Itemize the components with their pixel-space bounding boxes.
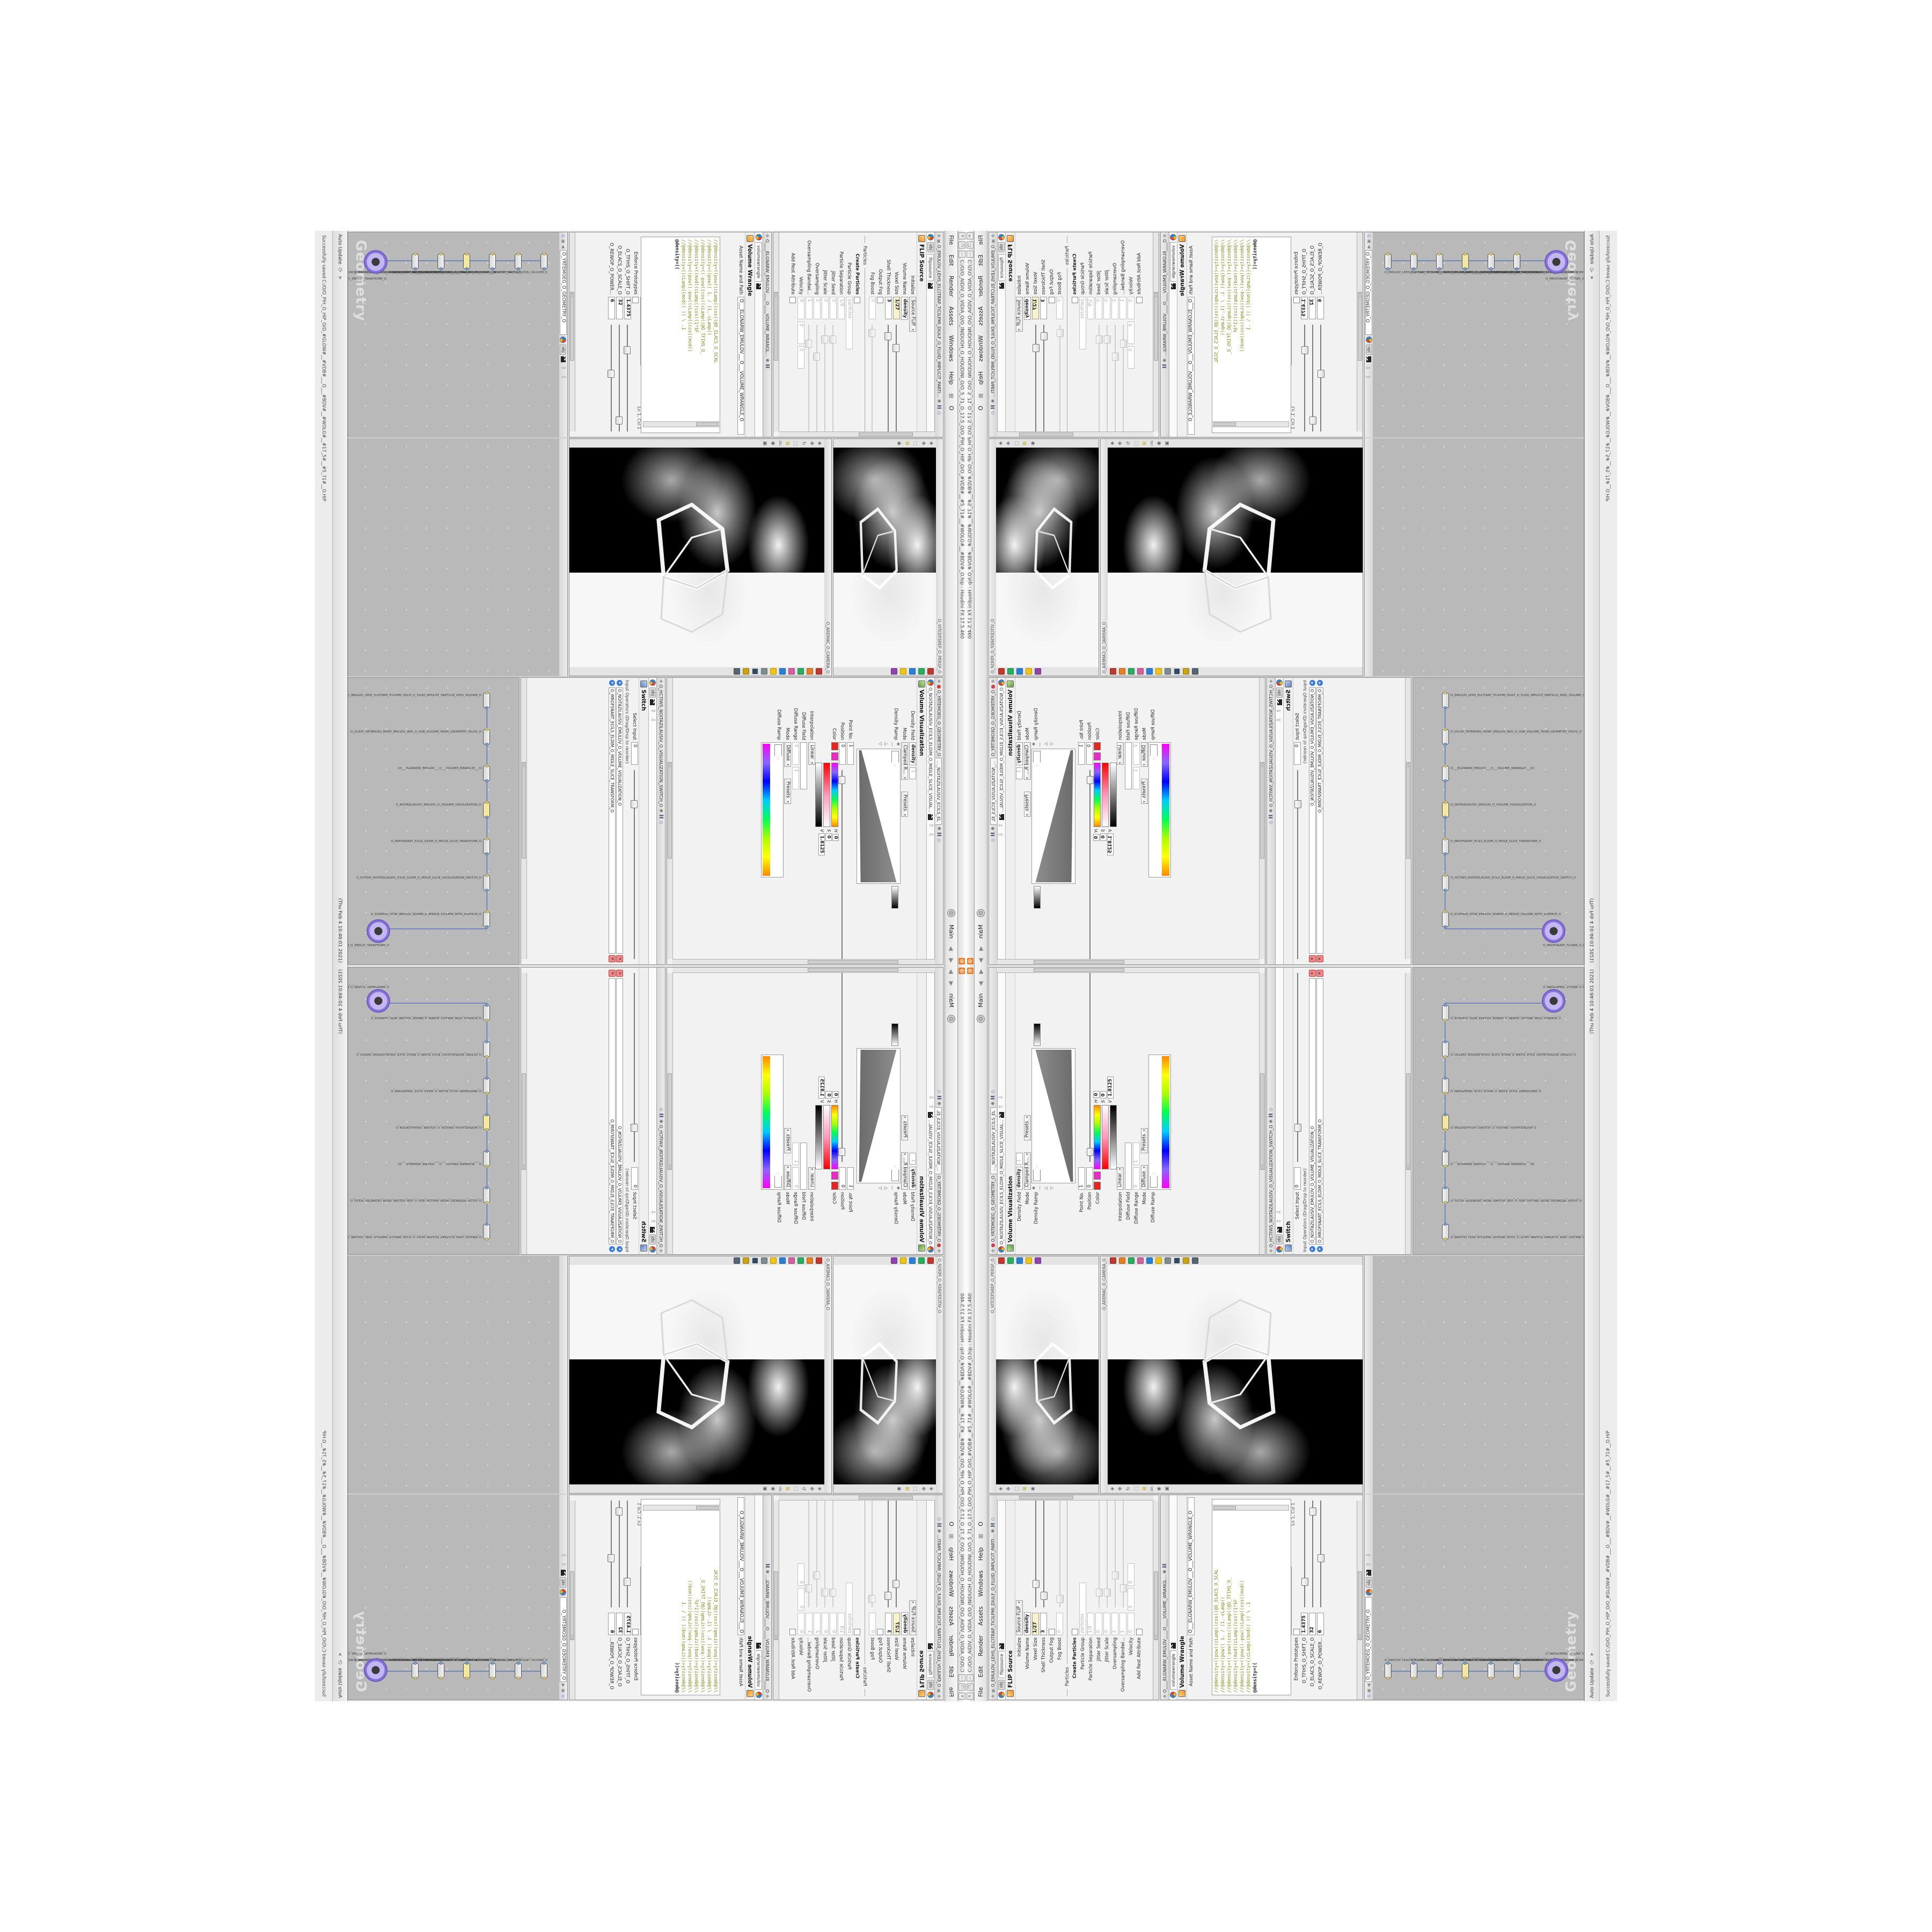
- menubar-scroll-right[interactable]: ▶: [948, 958, 955, 963]
- layout-icon[interactable]: ⊞: [948, 1534, 955, 1539]
- wireframe-icon[interactable]: [918, 668, 925, 675]
- density-field[interactable]: density: [909, 1167, 916, 1190]
- network-node[interactable]: [1385, 1663, 1392, 1678]
- saturation-gradient-bar[interactable]: [823, 763, 830, 827]
- viewport-camera-label[interactable]: O_VITCEPSREP_O_PERSP_O: [990, 619, 995, 674]
- point-no-field[interactable]: 1: [1078, 1167, 1085, 1190]
- network-a-canvas[interactable]: Geometry O_EMULOV_LEHS_ELCITRAP_TICILPMI…: [348, 1255, 559, 1700]
- mode-dropdown[interactable]: Clamped R...: [901, 742, 908, 780]
- diffuse-mode-dropdown[interactable]: Diffuse: [1141, 1165, 1148, 1190]
- network-node[interactable]: [483, 693, 490, 708]
- viz-tab[interactable]: ..._NOITAZILAUSIV_ECILS_EL: [936, 1107, 942, 1174]
- pane-divider[interactable]: [348, 1255, 943, 1256]
- houdini-help-icon[interactable]: H: [991, 832, 996, 837]
- update-mode-selector[interactable]: Auto Update: [1590, 234, 1595, 264]
- color-swatch-magenta[interactable]: [1094, 752, 1101, 760]
- oversampling-field[interactable]: 2: [1111, 1613, 1118, 1635]
- value-gradient-bar[interactable]: [815, 763, 822, 827]
- switch-breadcrumb[interactable]: O_HCTIWS_NOITAZILAUSIV_O_VISUALIZATION_S…: [1269, 685, 1274, 807]
- houdini-help-icon[interactable]: H: [936, 1095, 942, 1100]
- jitter-scale-slider[interactable]: [1107, 325, 1108, 431]
- velocity-y-field[interactable]: 0: [797, 1588, 804, 1611]
- color-swatch-red[interactable]: [831, 742, 838, 750]
- network-node[interactable]: [483, 839, 490, 854]
- network-node[interactable]: [1442, 729, 1449, 744]
- add-rest-checkbox[interactable]: [1136, 297, 1143, 303]
- notebook-icon[interactable]: [743, 1257, 749, 1264]
- network-editor-b[interactable]: O_EMULOV_LEHS_ELCITRAP_TICILPMI_DIULF_O_…: [348, 677, 519, 965]
- reorder-icon[interactable]: ➤: [1309, 680, 1315, 686]
- snap-grid-icon[interactable]: ⊞: [904, 441, 910, 445]
- pin-icon[interactable]: ▣: [561, 239, 566, 244]
- s-field[interactable]: 0: [1100, 833, 1107, 841]
- switch-horizontal-scrollbar[interactable]: ⁞⁞⁞: [521, 973, 527, 1254]
- clapper-icon[interactable]: [650, 699, 655, 705]
- pane-split-icon[interactable]: ✥: [936, 234, 941, 238]
- net-back-icon[interactable]: ◀: [1366, 245, 1371, 248]
- shell-thickness-slider[interactable]: [1043, 325, 1044, 431]
- enforce-prototypes-checkbox[interactable]: [1293, 1629, 1300, 1635]
- viewport-camera-label[interactable]: O_AREMAC_O_CAMERA_O: [1102, 1258, 1107, 1310]
- density-ramp-widget[interactable]: [857, 749, 901, 884]
- oversampling-slider[interactable]: [1115, 325, 1116, 431]
- gear-icon[interactable]: ✱: [765, 1570, 770, 1574]
- enforce-prototypes-checkbox[interactable]: [633, 1629, 639, 1635]
- value-gradient-bar[interactable]: [1110, 763, 1117, 827]
- asset-name-field[interactable]: O___ELGNARW_EMULOV___O___VOLUME_WRANGLE_…: [1188, 297, 1195, 435]
- clapper-icon[interactable]: [999, 814, 1004, 820]
- jitter-seed-slider[interactable]: [833, 1501, 834, 1607]
- particles-section-label[interactable]: Particles: [1064, 1495, 1071, 1700]
- initialize-dropdown[interactable]: Source FLIP: [909, 1600, 916, 1635]
- view-icon[interactable]: ◉: [1030, 1487, 1036, 1491]
- gear-icon[interactable]: ✱: [658, 809, 664, 813]
- output-fog-checkbox[interactable]: [877, 1629, 884, 1635]
- pie-chart-icon[interactable]: [927, 679, 934, 686]
- pie-chart-icon[interactable]: [1276, 679, 1283, 686]
- shift-param-slider[interactable]: [1304, 325, 1305, 431]
- layout-icon[interactable]: ⊞: [977, 393, 984, 398]
- menu-help[interactable]: Help: [947, 1546, 955, 1562]
- normals-icon[interactable]: [909, 1257, 916, 1264]
- gear-icon[interactable]: ✱: [936, 826, 942, 831]
- houdini-help-icon[interactable]: H: [765, 364, 770, 369]
- menu-help[interactable]: Help: [947, 370, 955, 386]
- flip-breadcrumb[interactable]: O_EMULOV_LEHS_ELCITRAP_TICILPMI_DIULF_O_…: [936, 1534, 941, 1687]
- menu-assets[interactable]: Assets: [947, 1605, 955, 1627]
- network-node[interactable]: [1442, 1188, 1449, 1203]
- menu-edit[interactable]: Edit: [977, 1665, 985, 1678]
- density-scale-field[interactable]: 1: [1016, 1153, 1023, 1165]
- network-node[interactable]: [1442, 1078, 1449, 1093]
- desktop-selector[interactable]: Main: [948, 993, 955, 1007]
- network-node[interactable]: [437, 254, 444, 269]
- network-node[interactable]: [1442, 693, 1449, 708]
- network-node[interactable]: [412, 254, 419, 269]
- power-param-slider[interactable]: [611, 325, 612, 431]
- network-node[interactable]: [1442, 1224, 1449, 1239]
- volume-name-field[interactable]: density: [1024, 1612, 1031, 1635]
- houdini-help-icon[interactable]: H: [1269, 1113, 1274, 1118]
- viz-tab[interactable]: ..._NOITAZILAUSIV_ECILS_EL: [936, 758, 942, 825]
- sync-arrows-icon[interactable]: ⟳: [1589, 267, 1596, 272]
- pane-divider[interactable]: [348, 1494, 943, 1495]
- display-node-purple[interactable]: [1545, 1658, 1568, 1682]
- delete-icon[interactable]: ✕: [1309, 955, 1316, 962]
- hue-gradient-bar[interactable]: [831, 763, 838, 827]
- move-icon[interactable]: ✥: [1118, 441, 1123, 445]
- shell-thickness-field[interactable]: 3: [1040, 1613, 1047, 1635]
- diffuse-ramp-widget[interactable]: [1148, 742, 1171, 877]
- saturation-gradient-bar[interactable]: [1102, 763, 1109, 827]
- code-scrollbar[interactable]: [643, 1505, 720, 1511]
- minimize-button[interactable]: —: [958, 251, 965, 258]
- viewport-camera-label[interactable]: O_VITCEPSREP_O_PERSP_O: [937, 1258, 942, 1313]
- handles-icon[interactable]: ⬚: [912, 1487, 918, 1491]
- network-node[interactable]: [483, 1188, 490, 1203]
- abc-icon[interactable]: abc: [778, 441, 782, 447]
- reorder-icon[interactable]: ➤: [1317, 1246, 1323, 1252]
- menu-windows[interactable]: Windows: [977, 1569, 985, 1598]
- density-scale-field[interactable]: 1: [1016, 767, 1023, 779]
- film-reel-icon[interactable]: [734, 668, 740, 675]
- obj-badge[interactable]: obj: [927, 242, 934, 252]
- velocity-z-field[interactable]: 0: [797, 346, 804, 369]
- nav-down-icon[interactable]: ⇩: [649, 716, 656, 723]
- fog-boost-slider[interactable]: [1059, 1501, 1060, 1607]
- nav-up-icon[interactable]: ⇧: [649, 1218, 656, 1225]
- ramp-add-remove[interactable]: ✚—△▽: [878, 742, 901, 747]
- handles-icon[interactable]: ⬚: [1014, 441, 1020, 446]
- output-fog-checkbox[interactable]: [1049, 1629, 1055, 1635]
- output-fog-checkbox[interactable]: [1049, 297, 1055, 303]
- menu-help[interactable]: Help: [977, 1546, 985, 1562]
- saturation-gradient-bar[interactable]: [1102, 1105, 1109, 1169]
- search-icon[interactable]: ⊙: [658, 821, 664, 825]
- camera-lock-icon[interactable]: [1035, 668, 1041, 675]
- menubar-scroll-left[interactable]: ◀: [977, 981, 984, 985]
- mode-dropdown[interactable]: Clamped R...: [901, 1152, 908, 1190]
- restore-button[interactable]: ❐: [967, 241, 974, 248]
- network-node[interactable]: [1410, 254, 1417, 269]
- axis-icon[interactable]: [1110, 668, 1116, 675]
- select-icon[interactable]: ◈: [998, 1487, 1004, 1491]
- handles-icon[interactable]: ⬚: [912, 441, 918, 446]
- pyramid-icon[interactable]: [1155, 1257, 1162, 1264]
- flip-vertical-scrollbar[interactable]: [997, 1495, 1153, 1501]
- gear-icon[interactable]: ✱: [1269, 809, 1274, 813]
- menu-edit[interactable]: Edit: [947, 253, 955, 267]
- viewport-camera-label[interactable]: O_VITCEPSREP_O_PERSP_O: [937, 619, 942, 674]
- oversampling-bw-field[interactable]: 1: [1119, 297, 1126, 319]
- snap-grid-icon[interactable]: ⊞: [1022, 441, 1028, 445]
- lights-icon[interactable]: [900, 668, 906, 675]
- viewport-small-render[interactable]: [996, 448, 1099, 667]
- power-param-field[interactable]: 6: [1317, 297, 1324, 319]
- velocity-x-field[interactable]: 0: [797, 1613, 804, 1635]
- film-reel-icon[interactable]: [1192, 668, 1198, 675]
- delete-icon[interactable]: ✕: [609, 955, 616, 962]
- snap-grid-icon[interactable]: ⊞: [785, 441, 790, 445]
- wrangle-breadcrumb[interactable]: O____ELGNARW_EMULOV____O____VOLUME_WRANG…: [765, 239, 770, 357]
- snap-grid-icon[interactable]: ⊞: [1142, 441, 1147, 445]
- display-node-purple[interactable]: [364, 250, 387, 274]
- velocity-y-field[interactable]: 0: [1128, 1588, 1135, 1611]
- pane-divider[interactable]: [348, 437, 943, 438]
- diffuse-mode-dropdown[interactable]: Diffuse: [784, 742, 791, 767]
- gear-icon[interactable]: ✱: [936, 399, 942, 404]
- volume-name-field[interactable]: density: [901, 297, 908, 320]
- menu-o-item[interactable]: O: [977, 406, 984, 411]
- flip-node-tab[interactable]: flipsource: [927, 1651, 934, 1678]
- network-a-path[interactable]: O_YRTEMOEG_O_GEOMETRY_O: [560, 1597, 567, 1682]
- pane-divider[interactable]: [989, 437, 1584, 438]
- orbit-icon[interactable]: [1119, 1257, 1125, 1264]
- network-a-path[interactable]: O_YRTEMOEG_O_GEOMETRY_O: [1365, 250, 1372, 335]
- hue-gradient-bar[interactable]: [1094, 1105, 1101, 1169]
- point-no-field[interactable]: 1: [847, 1167, 854, 1190]
- nav-up-icon[interactable]: ⇧: [998, 1103, 1005, 1110]
- pane-pin-icon[interactable]: ▣: [936, 239, 941, 244]
- viz-breadcrumb[interactable]: O_NOITAZILAUSIV_ECILS_ELDIM_O_MIDLE_SLIC…: [999, 1119, 1004, 1245]
- v-field[interactable]: 1.8125: [818, 1077, 825, 1099]
- power-param-field[interactable]: 6: [608, 1613, 615, 1635]
- shell-thickness-field[interactable]: 3: [885, 1613, 892, 1635]
- view-icon[interactable]: ◉: [770, 1487, 775, 1491]
- obj-tab-badge[interactable]: obj: [560, 1577, 567, 1587]
- network-node-selected[interactable]: [463, 1663, 470, 1678]
- shell-thickness-slider[interactable]: [888, 325, 889, 431]
- pane-split-icon[interactable]: ✥: [658, 1249, 663, 1253]
- viz-tab[interactable]: ..._NOITAZILAUSIV_ECILS_EL: [990, 758, 997, 825]
- flower-icon[interactable]: [788, 668, 795, 675]
- pie-chart-icon[interactable]: [1276, 1246, 1283, 1253]
- viz-vertical-scrollbar[interactable]: [672, 968, 935, 973]
- power-param-slider[interactable]: [1320, 1501, 1321, 1607]
- nav-down-icon[interactable]: ⇩: [927, 1094, 934, 1101]
- viz-breadcrumb[interactable]: O_NOITAZILAUSIV_ECILS_ELDIM_O_MIDLE_SLIC…: [928, 687, 933, 813]
- delete-icon[interactable]: ✕: [1316, 970, 1323, 977]
- restore-button[interactable]: ❐: [958, 1684, 965, 1690]
- particle-group-field[interactable]: particles: [1079, 297, 1086, 349]
- velocity-y-field[interactable]: 0: [1128, 321, 1135, 344]
- handles-icon[interactable]: ⬚: [793, 1487, 798, 1491]
- fog-boost-field[interactable]: 0: [869, 1613, 876, 1635]
- create-particles-checkbox[interactable]: [854, 1629, 861, 1635]
- clapper-icon[interactable]: [561, 356, 566, 362]
- pane-divider[interactable]: [989, 1255, 1584, 1256]
- point-no-field[interactable]: 1: [1078, 742, 1085, 765]
- houdini-help-icon[interactable]: H: [936, 832, 942, 837]
- shade-icon[interactable]: [998, 1257, 1005, 1264]
- hue-gradient-bar[interactable]: [1094, 763, 1101, 827]
- flip-horizontal-scrollbar[interactable]: ⁞⁞⁞: [1153, 1501, 1159, 1700]
- network-node-selected[interactable]: [483, 802, 490, 817]
- select-input-slider[interactable]: [1297, 770, 1298, 959]
- jitter-scale-field[interactable]: 0: [822, 1613, 829, 1635]
- oversampling-bw-slider[interactable]: [1123, 1501, 1124, 1607]
- particle-group-field[interactable]: particles: [1079, 1583, 1086, 1635]
- clapper-icon[interactable]: [928, 1112, 933, 1118]
- network-node[interactable]: [540, 254, 547, 269]
- obj-badge[interactable]: obj: [998, 1680, 1005, 1690]
- viz-breadcrumb[interactable]: O_NOITAZILAUSIV_ECILS_ELDIM_O_MIDLE_SLIC…: [999, 687, 1004, 813]
- pane-pin-icon[interactable]: ▣: [991, 239, 996, 244]
- film-reel-icon[interactable]: [734, 1257, 740, 1264]
- enforce-prototypes-checkbox[interactable]: [1293, 297, 1300, 303]
- camera-lock-icon[interactable]: [891, 668, 897, 675]
- flower-icon[interactable]: [1137, 668, 1144, 675]
- handles-icon[interactable]: ⬚: [1134, 1487, 1139, 1491]
- code-scrollbar[interactable]: [1212, 1505, 1289, 1511]
- clapper-icon[interactable]: [928, 814, 933, 820]
- nav-up-icon[interactable]: ⇧: [1276, 1218, 1283, 1225]
- clapper-icon[interactable]: [1277, 1227, 1282, 1233]
- diffuse-field[interactable]: [800, 1143, 807, 1190]
- network-node[interactable]: [1442, 1151, 1449, 1166]
- color-swatch-magenta[interactable]: [1094, 1172, 1101, 1180]
- flip-horizontal-scrollbar[interactable]: ⁞⁞⁞: [1153, 232, 1159, 431]
- add-rest-checkbox[interactable]: [790, 297, 796, 303]
- diffuse-mode-dropdown[interactable]: Diffuse: [1141, 742, 1148, 767]
- pyramid-icon[interactable]: [1155, 668, 1162, 675]
- gear-icon[interactable]: ✱: [991, 1529, 996, 1533]
- flip-node-tab[interactable]: flipsource: [998, 1651, 1005, 1678]
- desktop-selector[interactable]: Main: [977, 925, 984, 939]
- pin-icon[interactable]: ▣: [1366, 1688, 1371, 1693]
- scale-param-field[interactable]: 32: [1309, 1613, 1316, 1635]
- menu-windows[interactable]: Windows: [947, 1569, 955, 1598]
- particle-separation-field[interactable]: 1/9: [1087, 297, 1094, 319]
- layout-icon[interactable]: ⊞: [977, 1534, 984, 1539]
- pie-chart-icon[interactable]: [1366, 336, 1372, 343]
- update-mode-selector[interactable]: Auto Update: [338, 1668, 343, 1698]
- nav-up-icon[interactable]: ⇧: [927, 1103, 934, 1110]
- diffuse-field[interactable]: [800, 742, 807, 789]
- shift-param-slider[interactable]: [1304, 1501, 1305, 1607]
- ramp-add-remove[interactable]: ✚—△▽: [878, 1185, 901, 1190]
- network-node[interactable]: [483, 912, 490, 927]
- value-gradient-bar[interactable]: [1034, 1023, 1041, 1046]
- film-reel-icon[interactable]: [1192, 1257, 1198, 1264]
- reorder-icon[interactable]: ➤: [617, 1246, 623, 1252]
- density-scale-field[interactable]: 1: [909, 767, 916, 779]
- flower-icon[interactable]: [788, 1257, 795, 1264]
- scale-param-slider[interactable]: [1312, 325, 1313, 431]
- input-operator-2[interactable]: O_MROFSNART_ECILS_ELDIM_O_MIDLE_SLICE_TR…: [609, 687, 616, 954]
- clapper-icon[interactable]: [757, 1643, 762, 1649]
- rotate-icon[interactable]: ↻: [801, 441, 806, 445]
- gear-icon[interactable]: ✱: [936, 1101, 942, 1106]
- camera-icon[interactable]: ▣: [1165, 441, 1170, 446]
- gear-icon[interactable]: ✱: [1162, 1570, 1168, 1574]
- pane-divider[interactable]: [348, 676, 943, 677]
- camera-lock-icon[interactable]: [1035, 1257, 1041, 1264]
- grid-display-icon[interactable]: [761, 668, 767, 675]
- notebook-icon[interactable]: [743, 668, 749, 675]
- reorder-icon[interactable]: ➤: [610, 680, 616, 686]
- houdini-help-icon[interactable]: H: [991, 405, 996, 409]
- code-scrollbar[interactable]: [1212, 421, 1289, 427]
- move-icon[interactable]: ✥: [1006, 1487, 1012, 1491]
- search-icon[interactable]: ⊙: [1269, 1108, 1274, 1112]
- menu-render[interactable]: Render: [977, 1634, 985, 1657]
- nav-up-icon[interactable]: ⇧: [560, 364, 567, 371]
- presets-dropdown[interactable]: Presets: [901, 1115, 908, 1140]
- presets-dropdown[interactable]: Presets: [1024, 1115, 1031, 1140]
- normals-icon[interactable]: [1016, 1257, 1023, 1264]
- obj-badge[interactable]: obj: [1276, 687, 1283, 698]
- nav-up-icon[interactable]: ⇧: [1366, 364, 1372, 371]
- flip-node-tab[interactable]: flipsource: [927, 254, 934, 281]
- pie-chart-icon[interactable]: [756, 1692, 762, 1698]
- wrangle-horizontal-scrollbar[interactable]: ⁞⁞⁞: [569, 1501, 575, 1700]
- obj-tab-badge[interactable]: obj: [1366, 345, 1372, 355]
- presets-dropdown[interactable]: Presets: [1024, 792, 1031, 817]
- pie-chart-icon[interactable]: [998, 679, 1005, 686]
- diffuse-mode-dropdown[interactable]: Diffuse: [784, 1165, 791, 1190]
- oversampling-slider[interactable]: [1115, 1501, 1116, 1607]
- interpolation-dropdown[interactable]: Linear: [808, 1167, 815, 1190]
- search-icon[interactable]: ⊙: [991, 411, 996, 415]
- search-icon[interactable]: ⊙: [1269, 821, 1274, 825]
- network-node[interactable]: [483, 1005, 490, 1020]
- menu-o-item[interactable]: O: [948, 406, 955, 411]
- minimize-button[interactable]: —: [967, 251, 974, 258]
- select-input-field[interactable]: 0: [631, 1167, 638, 1190]
- nav-down-icon[interactable]: ⇩: [1366, 1552, 1372, 1559]
- viz-path2[interactable]: O_YRTEMOEG_O_GEOMETRY_O: [991, 690, 996, 756]
- desktop-selector[interactable]: Main: [948, 925, 955, 939]
- fog-boost-field[interactable]: 0: [1056, 1613, 1063, 1635]
- fog-boost-slider[interactable]: [872, 325, 873, 431]
- viz-horizontal-scrollbar[interactable]: ⁞⁞⁞: [667, 678, 673, 959]
- pie-chart-icon[interactable]: [560, 336, 567, 343]
- minimize-button[interactable]: —: [967, 1674, 974, 1681]
- wrangle-horizontal-scrollbar[interactable]: ⁞⁞⁞: [1357, 232, 1363, 431]
- network-node[interactable]: [515, 1663, 522, 1678]
- reorder-icon[interactable]: ➤: [1317, 680, 1323, 686]
- update-mode-selector[interactable]: Auto Update: [338, 234, 343, 264]
- select-input-field[interactable]: 0: [1294, 742, 1301, 765]
- presets-dropdown[interactable]: Presets: [1141, 779, 1148, 804]
- network-node-selected[interactable]: [1442, 1115, 1449, 1130]
- value-gradient-bar[interactable]: [1110, 1105, 1117, 1169]
- nav-up-icon[interactable]: ⇧: [927, 822, 934, 829]
- gear-icon[interactable]: ✱: [991, 1101, 996, 1106]
- value-gradient-bar[interactable]: [891, 1023, 898, 1046]
- select-input-slider[interactable]: [634, 973, 635, 1162]
- axis-icon[interactable]: [1110, 1257, 1116, 1264]
- oversampling-slider[interactable]: [817, 1501, 818, 1607]
- 3d-badge-icon[interactable]: [1174, 668, 1180, 675]
- velocity-x-field[interactable]: 0: [1128, 297, 1135, 319]
- pyramid-icon[interactable]: [770, 1257, 777, 1264]
- menubar-scroll-left[interactable]: ◀: [948, 946, 955, 950]
- network-editor-b[interactable]: O_EMULOV_LEHS_ELCITRAP_TICILPMI_DIULF_O_…: [1413, 967, 1584, 1255]
- flip-vertical-scrollbar[interactable]: [779, 431, 935, 437]
- oversampling-bw-field[interactable]: 1: [806, 1613, 813, 1635]
- velocity-z-field[interactable]: 0: [797, 1563, 804, 1586]
- shift-param-slider[interactable]: [627, 1501, 628, 1607]
- camera-icon[interactable]: ▣: [762, 1487, 767, 1491]
- grid-display-icon[interactable]: [1165, 1257, 1171, 1264]
- asset-name-field[interactable]: O___ELGNARW_EMULOV___O___VOLUME_WRANGLE_…: [1188, 1497, 1195, 1635]
- scale-param-field[interactable]: 32: [1309, 297, 1316, 319]
- asset-name-field[interactable]: O___ELGNARW_EMULOV___O___VOLUME_WRANGLE_…: [737, 297, 744, 435]
- mode-dropdown[interactable]: Clamped R...: [1024, 742, 1031, 780]
- viewport-camera-label[interactable]: O_VITCEPSREP_O_PERSP_O: [990, 1258, 995, 1313]
